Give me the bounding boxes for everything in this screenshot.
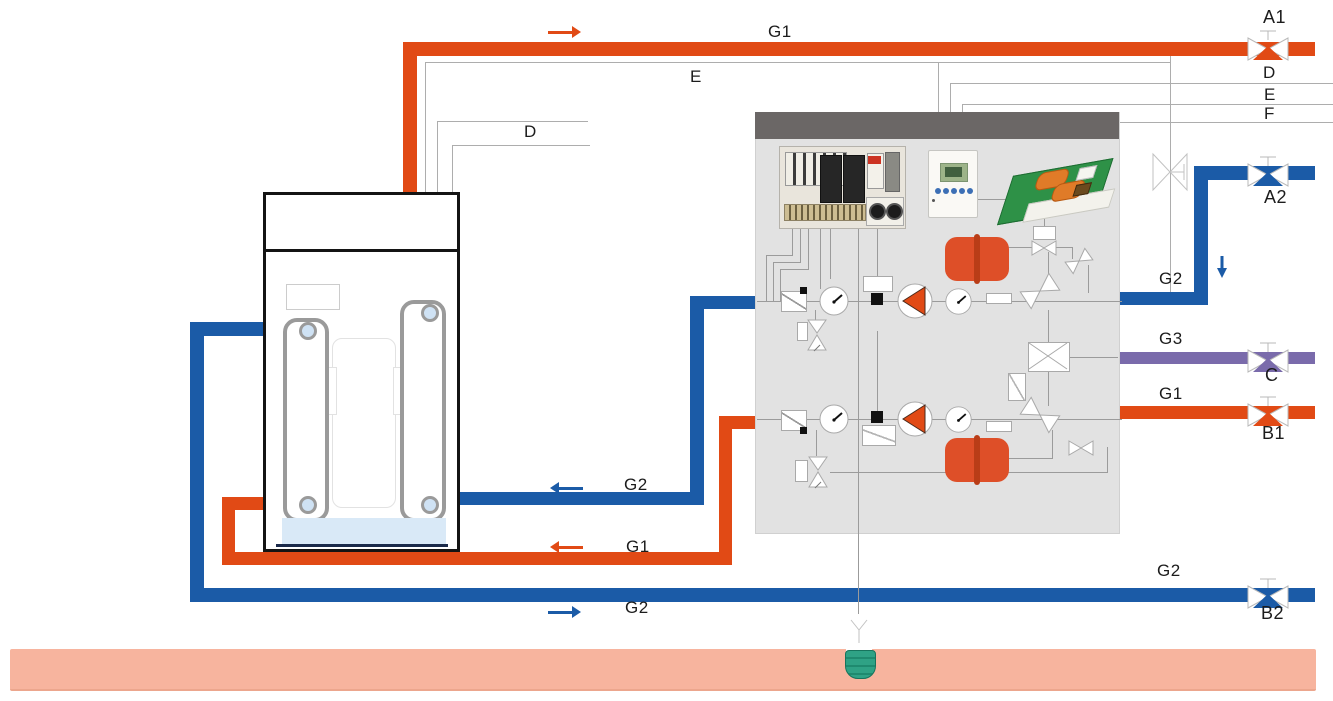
label-a2: A2 bbox=[1264, 187, 1287, 208]
pipe-g2-into-panel bbox=[690, 296, 757, 309]
flow-arrow-cold-left bbox=[550, 482, 583, 494]
flow-arrow-cold-down bbox=[1217, 256, 1227, 278]
coil-left bbox=[283, 318, 329, 522]
panel-wire-d bbox=[800, 227, 801, 262]
sensor-line-d-right bbox=[950, 83, 1333, 84]
pipe-g2-bottom bbox=[190, 588, 1315, 602]
coil-port-bottom-right bbox=[421, 496, 439, 514]
controller-button bbox=[951, 188, 957, 194]
controller-button bbox=[943, 188, 949, 194]
flow-switch-row1 bbox=[863, 276, 893, 292]
pipe-g2-mid-riser bbox=[690, 296, 704, 505]
label-e-left: E bbox=[690, 67, 702, 87]
panel-wire-sensor2 bbox=[877, 331, 878, 411]
pump-icon bbox=[896, 282, 934, 320]
tank-base-line bbox=[276, 544, 448, 547]
safety2-drop bbox=[816, 430, 817, 456]
knob bbox=[869, 203, 886, 220]
panel-wire-j bbox=[820, 227, 821, 289]
valve-a1-icon bbox=[1246, 26, 1290, 66]
terminal-strip bbox=[784, 204, 866, 221]
panel-wire-f bbox=[773, 262, 774, 301]
ground-probe-y bbox=[848, 618, 870, 644]
ground-probe-icon bbox=[845, 650, 876, 679]
panel-wire-c bbox=[766, 255, 767, 301]
controller-button bbox=[967, 188, 973, 194]
controller-lcd bbox=[940, 163, 968, 182]
expansion-tank-band bbox=[974, 435, 980, 485]
filter-row1-sensor bbox=[800, 287, 807, 294]
coil-port-top-right bbox=[421, 304, 439, 322]
panel-wire-h bbox=[780, 269, 809, 270]
label-a1: A1 bbox=[1263, 7, 1286, 28]
label-b2: B2 bbox=[1261, 603, 1284, 624]
tank-inner-element bbox=[332, 338, 396, 508]
exp1-link4 bbox=[1088, 265, 1089, 293]
relay-red-label bbox=[868, 156, 881, 164]
label-g2-right: G2 bbox=[1159, 269, 1183, 289]
label-g1-mid: G1 bbox=[626, 537, 650, 557]
expansion-tank-lower bbox=[945, 438, 1009, 482]
panel-row1-line bbox=[757, 301, 1122, 302]
panel-wire-e bbox=[773, 262, 801, 263]
label-g1-right: G1 bbox=[1159, 384, 1183, 404]
mixing-valve-x bbox=[1028, 342, 1068, 370]
temp-sensor-row1 bbox=[871, 293, 883, 305]
pipe-g2-left-riser bbox=[190, 322, 204, 602]
motorized-valve-icon bbox=[1150, 148, 1190, 196]
panel-header-bar bbox=[755, 112, 1119, 139]
label-c: C bbox=[1265, 365, 1279, 386]
flow-meter-row1 bbox=[986, 293, 1012, 304]
gauge-icon bbox=[944, 287, 973, 316]
temperature-controller bbox=[928, 150, 978, 218]
tank-top-divider bbox=[263, 249, 460, 252]
coil-port-bottom-left bbox=[299, 496, 317, 514]
xbox-out bbox=[1068, 357, 1118, 358]
contactor-block bbox=[820, 155, 842, 203]
safety2-riser bbox=[1107, 447, 1108, 473]
pipe-g1-top bbox=[403, 42, 1315, 56]
electrical-cabinet-photo bbox=[779, 146, 906, 229]
exp2-riser bbox=[1052, 430, 1053, 458]
din-device bbox=[885, 152, 900, 192]
contactor-block bbox=[843, 155, 865, 203]
flow-arrow-cold-right bbox=[548, 606, 581, 618]
exp2-link bbox=[1009, 458, 1053, 459]
controller-lcd-screen bbox=[945, 167, 962, 177]
label-e-right: E bbox=[1264, 85, 1276, 105]
filter-row1 bbox=[781, 291, 807, 312]
controller-button bbox=[935, 188, 941, 194]
filter-row2-sensor bbox=[800, 427, 807, 434]
valve-actuator-box bbox=[1008, 373, 1026, 401]
exp1-link2 bbox=[1056, 247, 1072, 248]
label-d-right: D bbox=[1263, 63, 1276, 83]
panel-wire-b bbox=[766, 255, 793, 256]
flow-switch-row2 bbox=[862, 425, 896, 446]
gauge-icon bbox=[818, 285, 850, 317]
panel-wire-a bbox=[792, 227, 793, 255]
pipe-g1-into-panel bbox=[719, 416, 757, 429]
tank-water bbox=[282, 518, 446, 544]
sensor-line-e-right bbox=[962, 104, 1333, 105]
coil-port-top-left bbox=[299, 322, 317, 340]
gauge-icon bbox=[944, 405, 973, 434]
expansion-tank-band bbox=[974, 234, 980, 284]
controller-led bbox=[932, 199, 935, 202]
xbox-riser-mid bbox=[1048, 310, 1049, 344]
label-b1: B1 bbox=[1262, 423, 1285, 444]
label-g2-bottom-right: G2 bbox=[1157, 561, 1181, 581]
knob bbox=[886, 203, 903, 220]
small-valve-icon bbox=[1068, 440, 1094, 456]
label-g2-mid: G2 bbox=[624, 475, 648, 495]
label-g1-top: G1 bbox=[768, 22, 792, 42]
flow-arrow-hot-right bbox=[548, 26, 581, 38]
temp-sensor-row2 bbox=[871, 411, 883, 423]
sensor-line-d1 bbox=[437, 121, 588, 122]
label-g2-bottom: G2 bbox=[625, 598, 649, 618]
panel-wire-k bbox=[830, 227, 831, 279]
valve-a2-icon bbox=[1246, 152, 1290, 192]
sensor-line-e-left bbox=[425, 62, 1170, 63]
controller-button bbox=[959, 188, 965, 194]
expansion-tank-upper bbox=[945, 237, 1009, 281]
small-valve-icon bbox=[1031, 240, 1057, 256]
label-d-left: D bbox=[524, 122, 537, 142]
label-f-right: F bbox=[1264, 104, 1275, 124]
gauge-icon bbox=[818, 403, 850, 435]
coil-right bbox=[400, 300, 446, 522]
flow-arrow-hot-left bbox=[550, 541, 583, 553]
panel-row2-line bbox=[757, 419, 1122, 420]
safety-valve-icon bbox=[807, 455, 829, 489]
piping-diagram: G1 E D A1 D E F A2 G2 G3 C G1 B1 G2 B2 G… bbox=[0, 0, 1333, 701]
safety-valve-icon bbox=[806, 318, 828, 352]
pipe-g2-a2-riser bbox=[1194, 166, 1208, 305]
exp1-link bbox=[1008, 247, 1032, 248]
pump-icon bbox=[896, 400, 934, 438]
sensor-line-d2 bbox=[452, 145, 590, 146]
pipe-g1-return-riser bbox=[719, 416, 732, 565]
sensor-line-e-left-drop bbox=[425, 62, 426, 208]
ground-band bbox=[10, 649, 1316, 691]
ground-sensor-line bbox=[858, 227, 859, 619]
pipe-g1-return-c bbox=[222, 552, 732, 565]
panel-wire-g bbox=[808, 227, 809, 269]
xbox-riser-bot bbox=[1048, 370, 1049, 406]
flow-meter-row2 bbox=[986, 421, 1012, 432]
tank-nameplate bbox=[286, 284, 340, 310]
label-g3-right: G3 bbox=[1159, 329, 1183, 349]
